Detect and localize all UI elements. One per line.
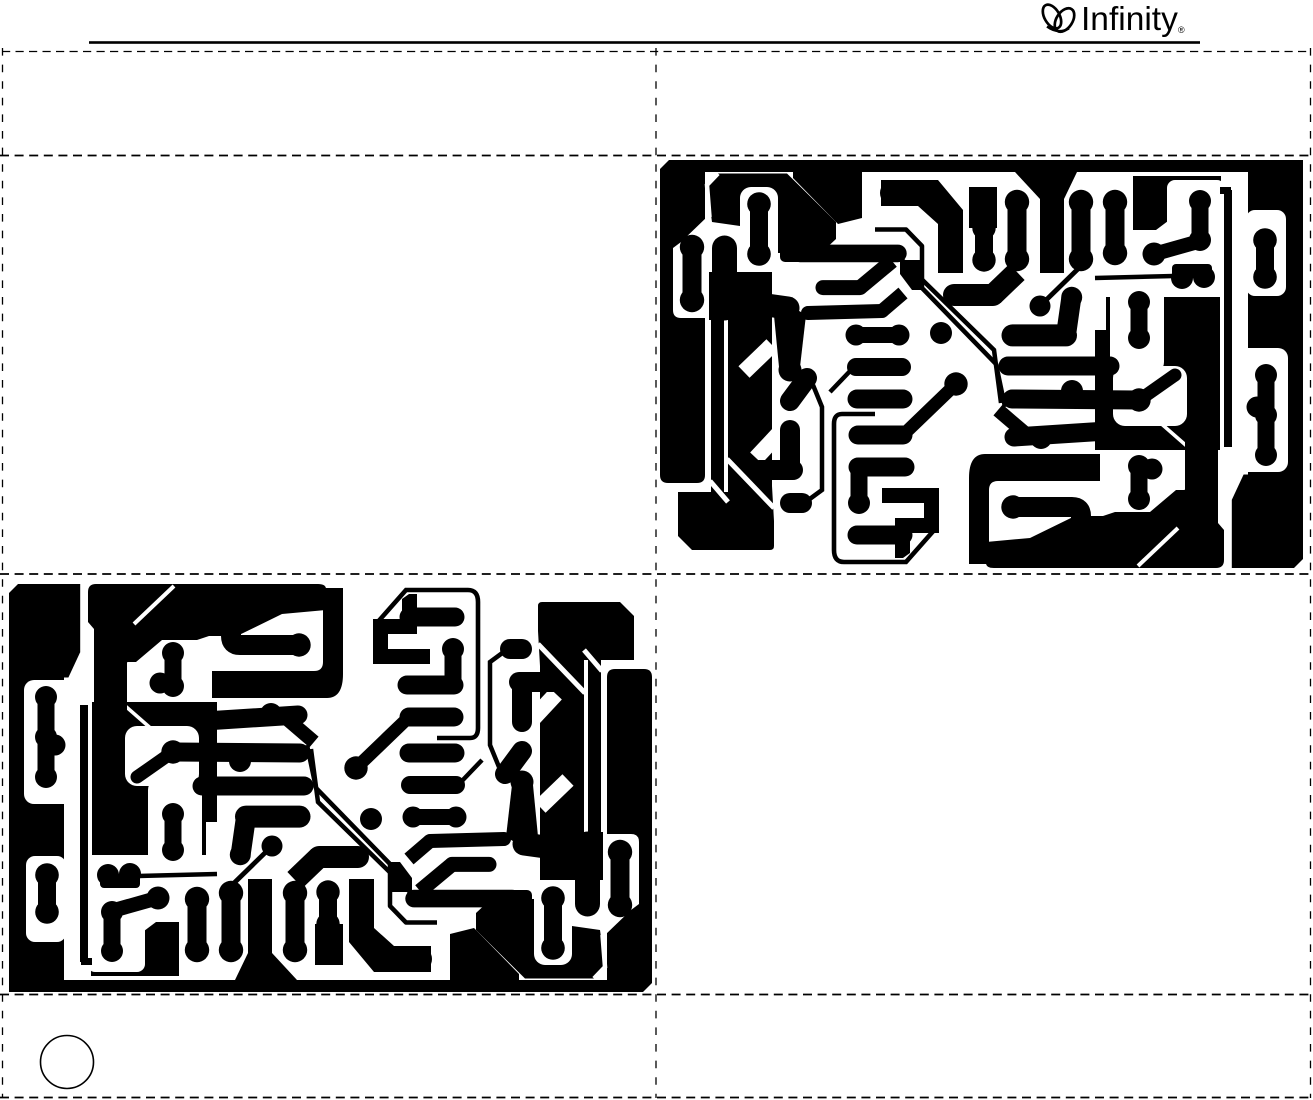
svg-text:Infinity: Infinity bbox=[1081, 1, 1178, 38]
svg-text:®: ® bbox=[1178, 25, 1185, 35]
